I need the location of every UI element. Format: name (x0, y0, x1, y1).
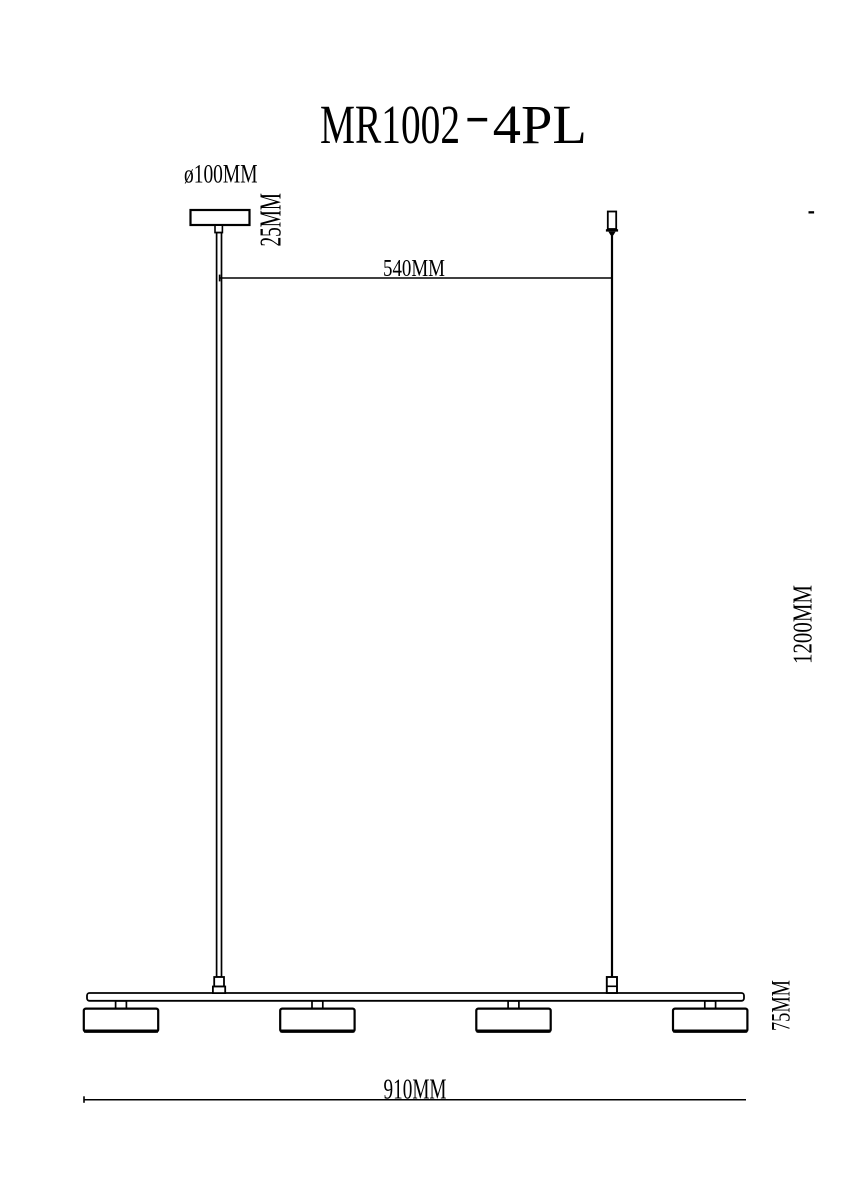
svg-text:1200MM: 1200MM (788, 585, 818, 664)
svg-text:75MM: 75MM (766, 980, 796, 1031)
svg-text:540MM: 540MM (383, 256, 445, 282)
svg-text:4PL: 4PL (493, 94, 587, 155)
svg-text:910MM: 910MM (384, 1075, 447, 1106)
svg-text:ø100MM: ø100MM (184, 160, 258, 189)
svg-text:25MM: 25MM (253, 193, 288, 247)
svg-text:MR1002: MR1002 (320, 94, 460, 155)
